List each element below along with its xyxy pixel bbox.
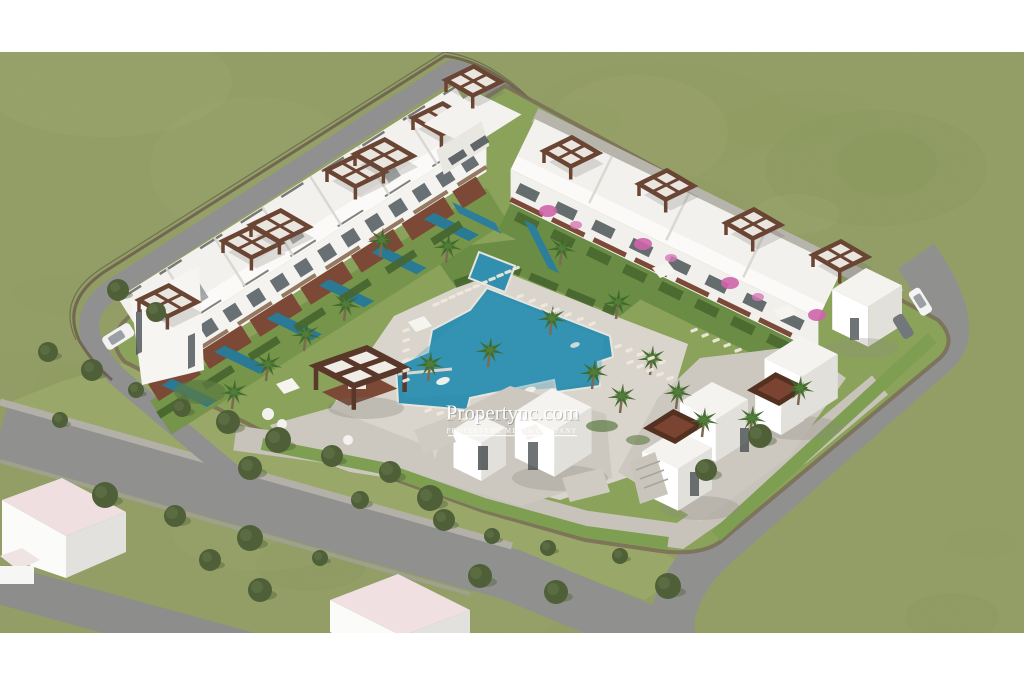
svg-text:PROPERTYNC MEDIA COMPANY: PROPERTYNC MEDIA COMPANY: [446, 428, 577, 435]
svg-text:Propertync.com: Propertync.com: [446, 401, 580, 425]
